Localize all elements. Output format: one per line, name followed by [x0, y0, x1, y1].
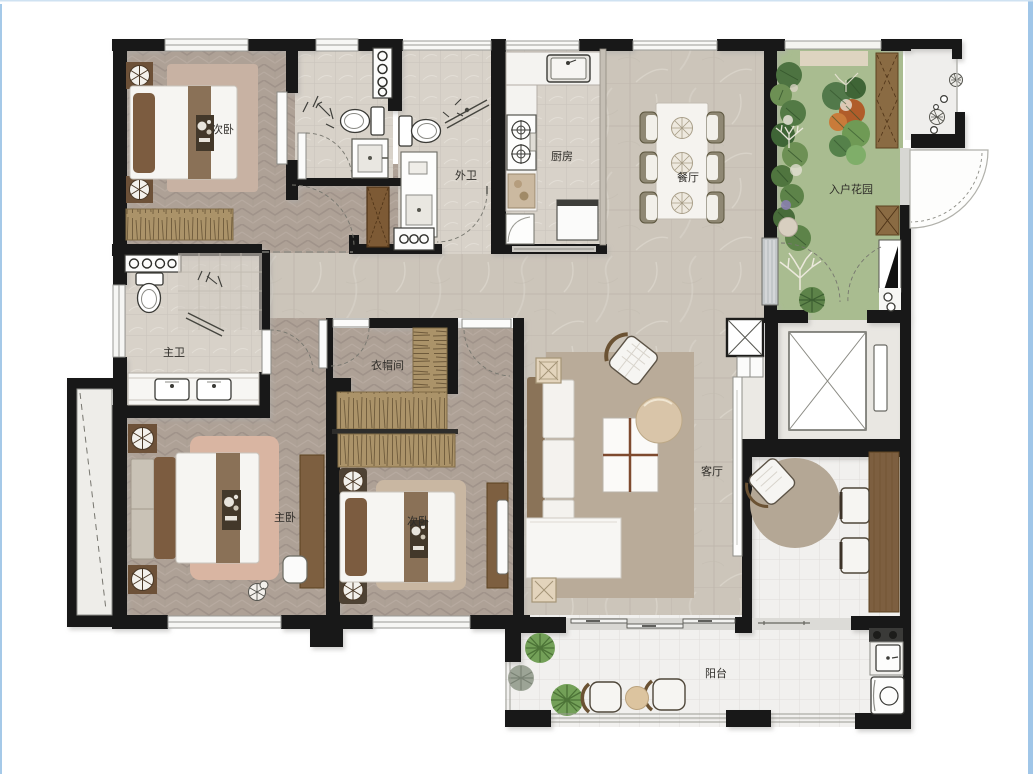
- svg-text:主卧: 主卧: [274, 511, 296, 524]
- svg-text:厨房: 厨房: [551, 150, 573, 163]
- svg-text:外卫: 外卫: [455, 169, 477, 182]
- svg-text:次卧: 次卧: [212, 122, 234, 136]
- svg-text:阳台: 阳台: [705, 666, 727, 680]
- svg-text:次卧: 次卧: [407, 514, 429, 528]
- svg-text:入户花园: 入户花园: [829, 182, 873, 196]
- svg-text:主卫: 主卫: [163, 346, 185, 359]
- svg-text:衣帽间: 衣帽间: [371, 358, 404, 372]
- svg-text:客厅: 客厅: [701, 464, 723, 478]
- svg-text:餐厅: 餐厅: [677, 170, 699, 184]
